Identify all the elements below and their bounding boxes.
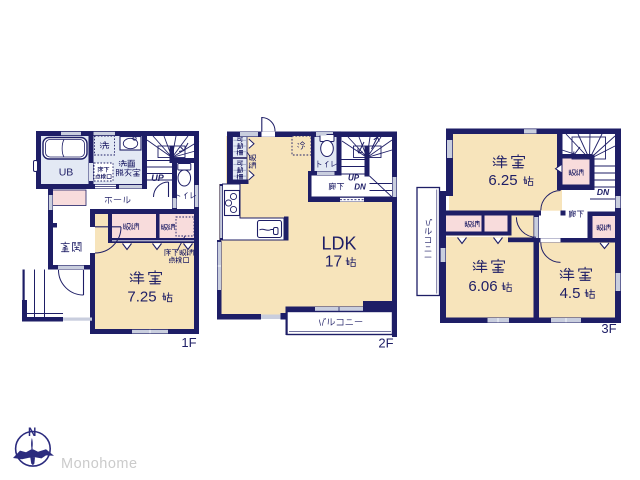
svg-text:6.06: 6.06 (468, 278, 497, 295)
svg-text:1F: 1F (181, 335, 196, 350)
svg-text:N: N (28, 427, 36, 439)
svg-text:LDK: LDK (321, 233, 356, 253)
svg-text:UP: UP (151, 173, 164, 183)
svg-text:2F: 2F (378, 335, 393, 350)
svg-text:Monohome: Monohome (61, 456, 138, 472)
svg-text:UP: UP (348, 174, 360, 183)
svg-text:6.25: 6.25 (488, 172, 517, 189)
svg-text:4.5: 4.5 (560, 285, 581, 302)
svg-text:7.25: 7.25 (127, 288, 156, 305)
svg-text:17: 17 (325, 254, 342, 271)
svg-text:DN: DN (354, 182, 366, 191)
svg-text:3F: 3F (601, 321, 616, 336)
svg-text:UB: UB (59, 166, 74, 178)
svg-text:DN: DN (597, 187, 610, 197)
